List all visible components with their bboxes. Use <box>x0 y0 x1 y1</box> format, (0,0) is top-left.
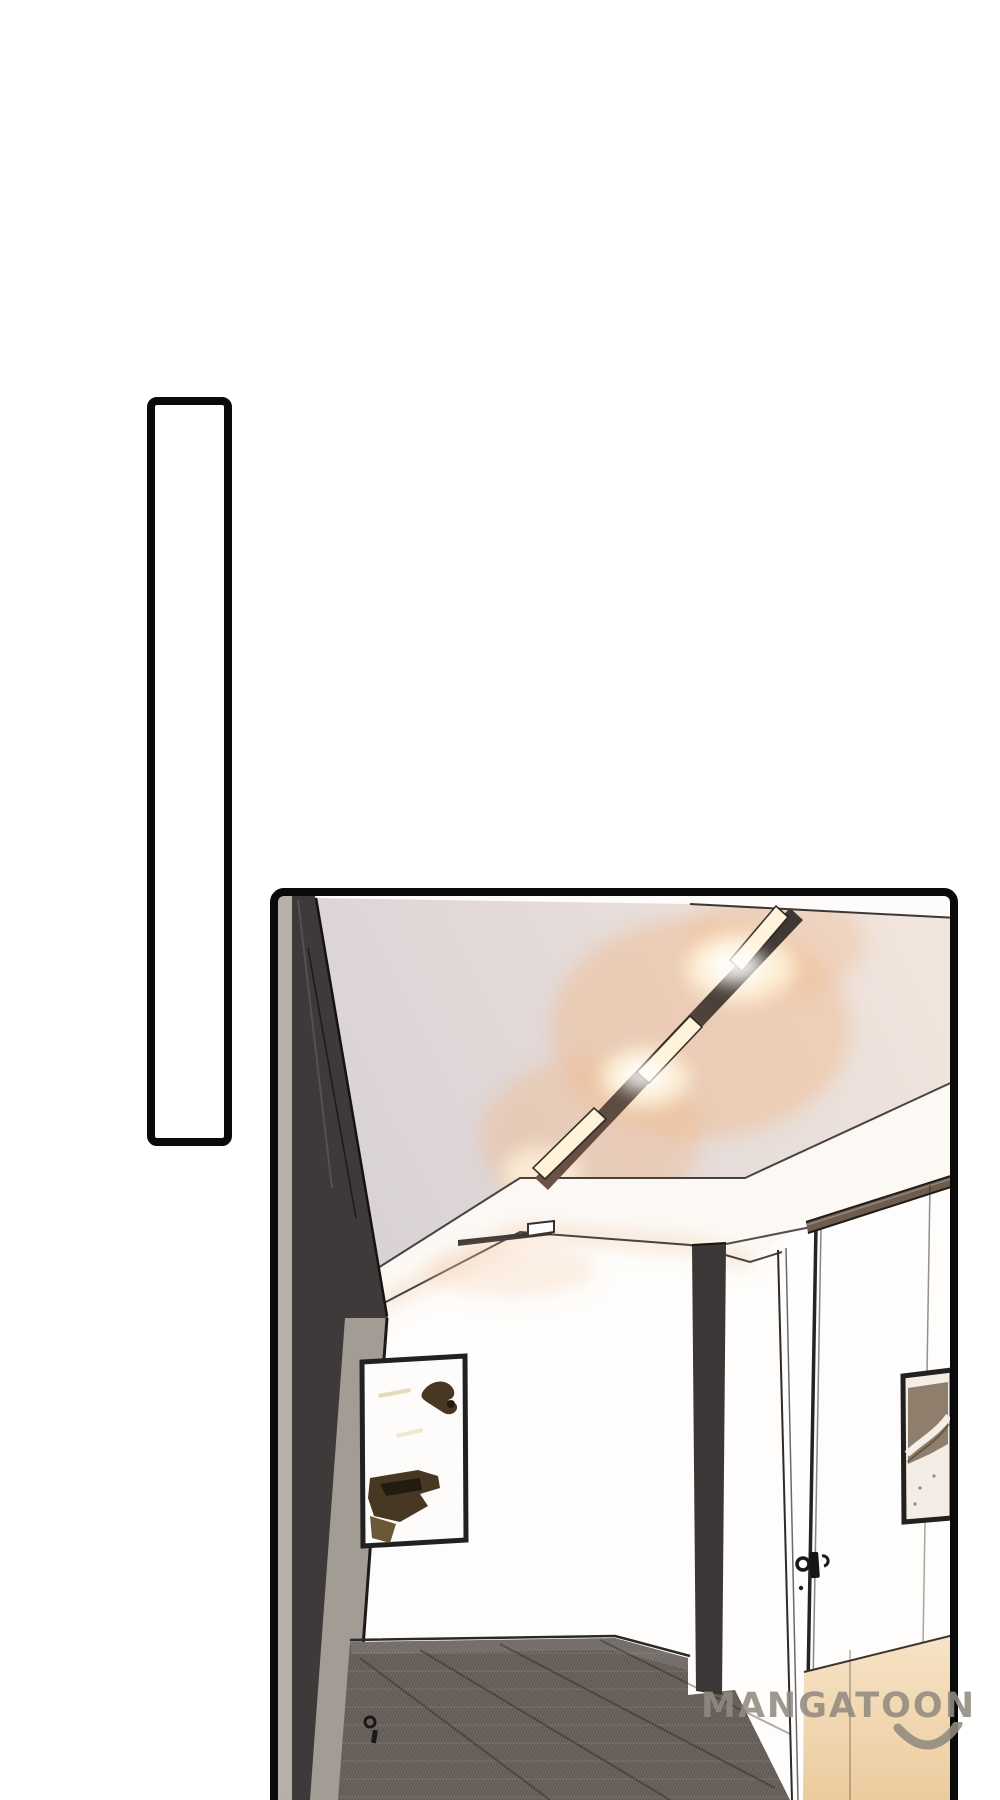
picture-frame-right <box>903 1370 952 1522</box>
watermark-smile-icon <box>892 1722 964 1770</box>
picture-frame-left <box>362 1356 466 1546</box>
scene-panel <box>270 888 958 1800</box>
empty-speech-panel <box>147 397 232 1146</box>
scene-svg <box>270 888 958 1800</box>
doorway-post <box>692 1243 726 1695</box>
page: { "page": {"width": 1000, "height": 1800… <box>0 0 1000 1800</box>
watermark-text: MANGATOON <box>701 1686 976 1726</box>
